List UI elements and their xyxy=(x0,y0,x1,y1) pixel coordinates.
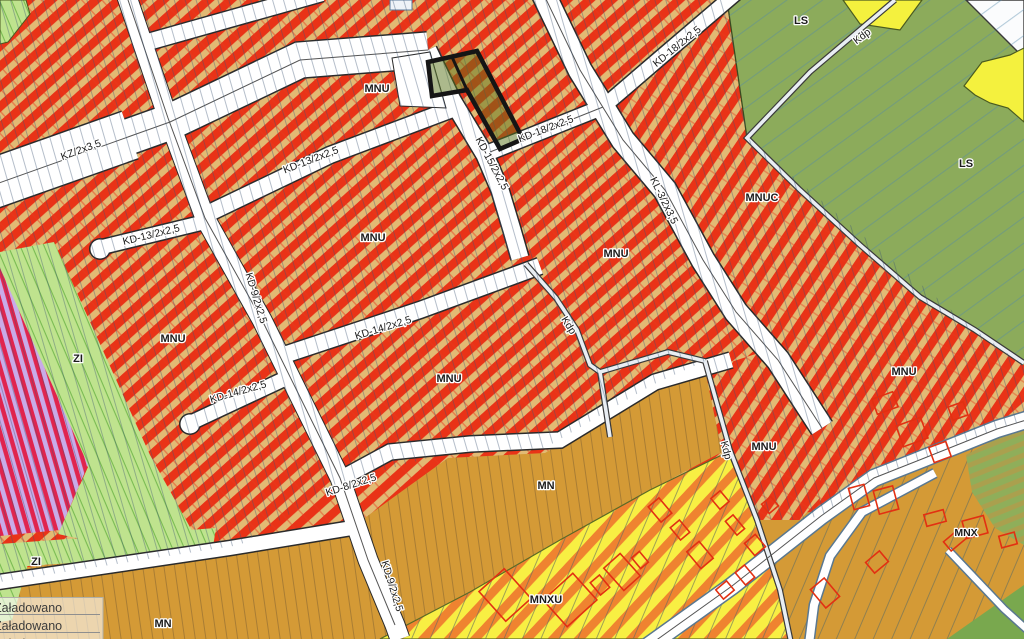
svg-text:Załadowano: Załadowano xyxy=(0,619,62,633)
svg-text:MNU: MNU xyxy=(436,373,461,385)
svg-text:ZI: ZI xyxy=(73,353,83,365)
svg-text:Załadowano: Załadowano xyxy=(0,601,62,615)
svg-text:MN: MN xyxy=(537,480,554,492)
svg-text:LS: LS xyxy=(794,15,808,27)
svg-text:MNX: MNX xyxy=(954,527,977,539)
svg-text:MNU: MNU xyxy=(364,83,389,95)
svg-text:MN: MN xyxy=(154,618,171,630)
svg-text:LS: LS xyxy=(959,158,973,170)
svg-text:MNU: MNU xyxy=(603,248,628,260)
svg-text:ZI: ZI xyxy=(31,556,41,568)
svg-text:MNU: MNU xyxy=(751,441,776,453)
svg-text:MNXU: MNXU xyxy=(530,594,562,606)
svg-text:MNU: MNU xyxy=(891,366,916,378)
svg-text:MNU: MNU xyxy=(160,333,185,345)
svg-text:MNUC: MNUC xyxy=(746,192,779,204)
svg-text:MNU: MNU xyxy=(360,232,385,244)
